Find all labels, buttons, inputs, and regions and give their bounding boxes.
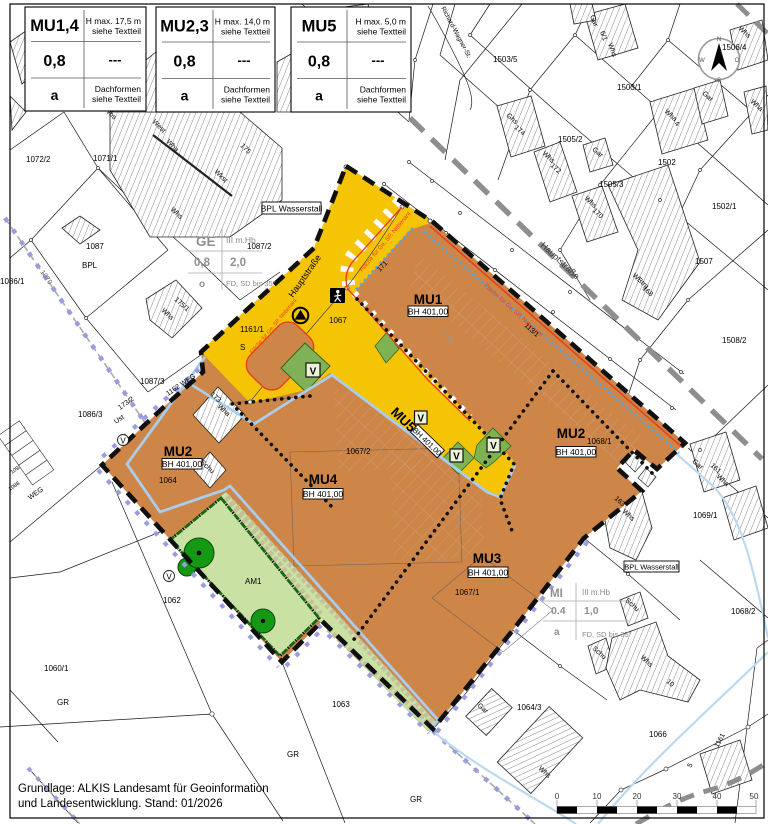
svg-text:H max. 14,0 m: H max. 14,0 m bbox=[215, 17, 270, 27]
svg-text:1067: 1067 bbox=[329, 316, 347, 325]
svg-text:siehe Textteil: siehe Textteil bbox=[357, 95, 406, 105]
svg-text:V: V bbox=[417, 414, 424, 425]
svg-text:a: a bbox=[51, 87, 59, 103]
svg-text:---: --- bbox=[238, 53, 251, 68]
svg-text:siehe Textteil: siehe Textteil bbox=[221, 27, 270, 37]
svg-text:1064: 1064 bbox=[159, 476, 177, 485]
svg-text:1087/3: 1087/3 bbox=[140, 377, 165, 386]
svg-text:V: V bbox=[120, 437, 126, 446]
svg-text:a: a bbox=[181, 88, 189, 104]
svg-text:MI: MI bbox=[550, 588, 563, 600]
svg-text:MU2,3: MU2,3 bbox=[160, 18, 209, 36]
svg-text:1086/1: 1086/1 bbox=[0, 277, 25, 286]
svg-text:GE: GE bbox=[196, 234, 216, 249]
svg-text:V: V bbox=[310, 367, 317, 378]
svg-text:40: 40 bbox=[713, 792, 722, 801]
svg-text:BPL: BPL bbox=[82, 261, 98, 270]
svg-text:MU2: MU2 bbox=[164, 444, 193, 459]
svg-text:1505/3: 1505/3 bbox=[599, 180, 624, 189]
svg-text:1506/4: 1506/4 bbox=[722, 43, 747, 52]
svg-text:0,8: 0,8 bbox=[194, 257, 211, 269]
svg-text:S: S bbox=[240, 343, 245, 352]
svg-text:AM1: AM1 bbox=[245, 577, 262, 586]
svg-text:30: 30 bbox=[673, 792, 682, 801]
svg-text:1067/1: 1067/1 bbox=[455, 588, 480, 597]
svg-text:FD, SD bis 35°: FD, SD bis 35° bbox=[582, 630, 632, 639]
svg-text:V: V bbox=[490, 441, 497, 452]
svg-text:1502/1: 1502/1 bbox=[712, 202, 737, 211]
svg-text:FD, SD bis 35°: FD, SD bis 35° bbox=[226, 279, 276, 288]
svg-text:MU5: MU5 bbox=[302, 18, 337, 36]
svg-text:o: o bbox=[199, 279, 205, 290]
svg-text:0,8: 0,8 bbox=[308, 54, 330, 71]
svg-text:1066: 1066 bbox=[649, 730, 667, 739]
svg-text:GR: GR bbox=[410, 795, 422, 804]
svg-text:1502: 1502 bbox=[658, 158, 676, 167]
svg-text:2,0: 2,0 bbox=[230, 257, 246, 269]
svg-text:siehe Textteil: siehe Textteil bbox=[92, 26, 141, 36]
svg-text:50: 50 bbox=[750, 792, 759, 801]
svg-text:BH 401,00: BH 401,00 bbox=[408, 307, 448, 317]
svg-text:---: --- bbox=[109, 52, 122, 67]
svg-text:BH 401,00: BH 401,00 bbox=[468, 568, 508, 578]
svg-text:siehe Textteil: siehe Textteil bbox=[92, 94, 141, 104]
svg-text:1060/1: 1060/1 bbox=[44, 664, 69, 673]
svg-text:N: N bbox=[717, 37, 721, 43]
svg-text:GR: GR bbox=[287, 750, 299, 759]
svg-text:1508/2: 1508/2 bbox=[722, 336, 747, 345]
svg-text:1064/3: 1064/3 bbox=[517, 703, 542, 712]
svg-text:siehe Textteil: siehe Textteil bbox=[221, 95, 270, 105]
svg-text:1067/2: 1067/2 bbox=[346, 447, 371, 456]
svg-text:MU4: MU4 bbox=[309, 472, 338, 487]
svg-text:1087: 1087 bbox=[86, 242, 104, 251]
svg-text:1071/1: 1071/1 bbox=[93, 154, 118, 163]
svg-text:III m.Hb: III m.Hb bbox=[582, 588, 611, 597]
svg-text:10: 10 bbox=[593, 792, 602, 801]
svg-text:a: a bbox=[315, 88, 323, 104]
svg-text:H max. 5,0 m: H max. 5,0 m bbox=[355, 17, 406, 27]
svg-text:V: V bbox=[166, 573, 172, 582]
svg-text:1503/1: 1503/1 bbox=[617, 83, 642, 92]
svg-text:MU1,4: MU1,4 bbox=[30, 17, 79, 35]
svg-text:1063: 1063 bbox=[332, 700, 350, 709]
svg-text:1062: 1062 bbox=[163, 596, 181, 605]
svg-text:0,8: 0,8 bbox=[173, 54, 195, 71]
svg-text:GR: GR bbox=[57, 698, 69, 707]
svg-text:1086/3: 1086/3 bbox=[78, 410, 103, 419]
svg-text:0: 0 bbox=[555, 792, 560, 801]
svg-text:20: 20 bbox=[633, 792, 642, 801]
svg-text:1068/1: 1068/1 bbox=[587, 437, 612, 446]
svg-text:W: W bbox=[699, 58, 705, 64]
svg-text:1072/2: 1072/2 bbox=[26, 155, 51, 164]
svg-text:1505/2: 1505/2 bbox=[558, 135, 583, 144]
svg-text:1,0: 1,0 bbox=[584, 605, 599, 617]
svg-text:a: a bbox=[554, 627, 560, 638]
svg-text:siehe Textteil: siehe Textteil bbox=[357, 27, 406, 37]
svg-text:0.4: 0.4 bbox=[551, 605, 566, 617]
svg-text:---: --- bbox=[372, 53, 385, 68]
svg-text:V: V bbox=[453, 452, 460, 463]
svg-text:1503/5: 1503/5 bbox=[493, 55, 518, 64]
svg-text:1087/2: 1087/2 bbox=[247, 242, 272, 251]
svg-text:MU1: MU1 bbox=[414, 292, 443, 307]
svg-text:H max. 17,5 m: H max. 17,5 m bbox=[86, 16, 141, 26]
svg-text:BPL Wasserstall: BPL Wasserstall bbox=[261, 204, 323, 214]
svg-text:1069/1: 1069/1 bbox=[693, 511, 718, 520]
svg-text:S: S bbox=[717, 78, 721, 84]
svg-text:Dachformen: Dachformen bbox=[360, 85, 407, 95]
svg-text:1161/1: 1161/1 bbox=[240, 325, 264, 334]
svg-text:BH 401,00: BH 401,00 bbox=[556, 447, 596, 457]
svg-text:BPL Wasserstall: BPL Wasserstall bbox=[624, 563, 679, 572]
svg-text:1507: 1507 bbox=[695, 257, 713, 266]
svg-text:MU2: MU2 bbox=[557, 426, 586, 441]
svg-text:Dachformen: Dachformen bbox=[224, 85, 271, 95]
svg-text:BH 401,00: BH 401,00 bbox=[162, 459, 202, 469]
svg-text:0,8: 0,8 bbox=[43, 53, 65, 70]
svg-text:O: O bbox=[735, 58, 740, 64]
svg-text:und Landesentwicklung. Stand:: und Landesentwicklung. Stand: 01/2026 bbox=[18, 798, 223, 810]
svg-text:Grundlage: ALKIS Landesamt für: Grundlage: ALKIS Landesamt für Geoinform… bbox=[18, 783, 269, 795]
svg-text:MU3: MU3 bbox=[473, 551, 502, 566]
svg-text:BH 401,00: BH 401,00 bbox=[303, 489, 343, 499]
svg-text:1068/2: 1068/2 bbox=[731, 607, 756, 616]
svg-text:Dachformen: Dachformen bbox=[95, 84, 142, 94]
